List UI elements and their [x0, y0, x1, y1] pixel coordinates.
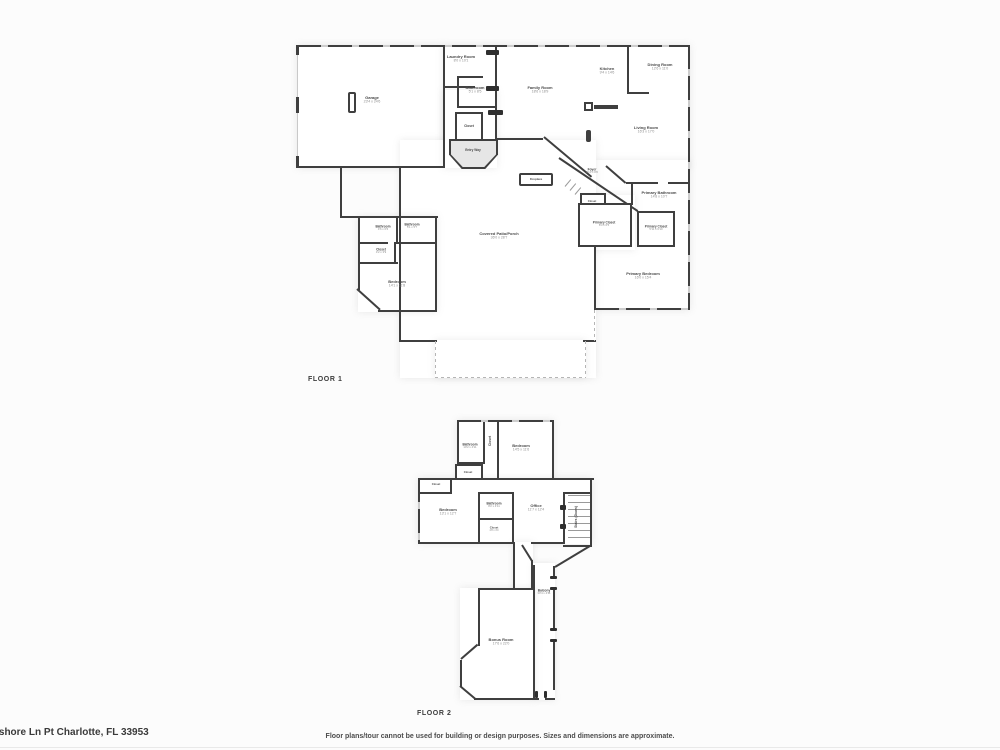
- wall: [552, 420, 554, 480]
- wall: [394, 244, 396, 264]
- room-dims: 4'8 x 4'0: [490, 529, 499, 532]
- room-dims: 13'1 x 12'7: [440, 512, 457, 516]
- room-dims: 14'5 x 11'6: [513, 448, 529, 452]
- room-label-closet: Closet: [588, 199, 597, 202]
- room-dims: 23'4 x 24'6: [364, 100, 381, 104]
- room-label-bathroom: Bathroom4'6 x 6'6: [375, 225, 390, 232]
- room-name: Entry Way: [465, 148, 481, 152]
- porch-edge: [435, 341, 436, 378]
- wall: [531, 542, 565, 544]
- room-label-primary-closet: Primary Closet8'3 x 6'5: [593, 221, 616, 228]
- porch-edge: [594, 310, 595, 341]
- wall: [340, 166, 342, 218]
- door-jamb-icon: [560, 505, 566, 510]
- wall: [590, 478, 592, 547]
- closet-shelf-icon: [488, 110, 503, 115]
- door-jamb-icon: [550, 576, 557, 579]
- room-label-laundry: Laundry Room8'0 x 10'1: [447, 55, 475, 64]
- wall: [460, 660, 462, 687]
- closet-shelf-icon: [486, 86, 499, 91]
- room-label-bedroom: Bedroom14'1 x 11'8: [388, 280, 406, 289]
- wall: [396, 216, 398, 244]
- room-dims: 36'0 x 28'7: [491, 236, 508, 240]
- wall: [533, 565, 535, 700]
- porch-edge: [435, 377, 586, 378]
- wall: [553, 642, 555, 690]
- wall: [483, 422, 485, 462]
- door-jamb-icon: [544, 691, 547, 698]
- room-dims: 12'6 x 11'0: [652, 67, 668, 71]
- wall: [420, 492, 452, 494]
- room-name: Closet: [432, 482, 441, 485]
- disclaimer-text: Floor plans/tour cannot be used for buil…: [0, 733, 1000, 740]
- room-dims: 5'1 x 5'7: [407, 226, 417, 229]
- wall: [457, 76, 483, 78]
- wall: [478, 588, 535, 590]
- door-jamb-icon: [560, 524, 566, 529]
- room-dims: 14'1 x 11'8: [389, 284, 405, 288]
- room-label-bathroom: Bathroom10'2 x 4'11: [462, 443, 477, 450]
- door-jamb-icon: [550, 639, 557, 642]
- wall: [297, 45, 690, 47]
- room-dims: 5'11 x 6'10: [649, 228, 662, 231]
- room-label-family-room: Family Room18'6 x 18'9: [527, 86, 552, 95]
- wall: [688, 45, 690, 310]
- wall: [378, 310, 437, 312]
- wall: [512, 492, 514, 542]
- room-label-balcony: Balcony30'4 x 4'11: [537, 589, 550, 596]
- room-name: Closet: [464, 470, 473, 473]
- room-dims: 14'8 x 10'7: [651, 195, 668, 199]
- floor-area: [435, 340, 586, 378]
- room-label-closet: Closet4'2 x 3'9: [376, 248, 386, 255]
- room-label-fireplace: Fireplace: [530, 177, 542, 180]
- room-name: Closet: [588, 199, 597, 202]
- room-label-closet: Closet: [488, 436, 492, 446]
- room-dims: 11'7 x 12'4: [528, 508, 544, 512]
- room-label-bonus-room: Bonus Room17'6 x 22'0: [489, 638, 514, 647]
- room-dims: 7'10 x 8'0: [586, 171, 598, 174]
- door-jamb-icon: [550, 587, 557, 590]
- room-label-closet: Closet: [432, 482, 441, 485]
- room-label-foyer: Foyer7'10 x 8'0: [586, 168, 598, 175]
- room-name: Closet: [464, 124, 474, 128]
- floor1-caption: FLOOR 1: [308, 376, 343, 383]
- wall: [478, 492, 480, 542]
- room-label-office: Office11'7 x 12'4: [528, 504, 544, 513]
- room-dims: 30'4 x 4'11: [537, 592, 550, 595]
- room-label-bedroom: Bedroom13'1 x 12'7: [439, 508, 457, 517]
- wall: [399, 166, 401, 342]
- room-label-living-room: Living Room16'3 x 17'0: [634, 126, 658, 135]
- wall: [457, 106, 497, 108]
- stairs-treads: [568, 495, 590, 543]
- room-label-primary-bedroom: Primary Bedroom16'0 x 15'4: [626, 272, 660, 281]
- room-dims: 8'2 x 4'11: [488, 505, 500, 508]
- room-label-dining-room: Dining Room12'6 x 11'0: [648, 63, 673, 72]
- porch-edge: [585, 341, 586, 378]
- room-label-kitchen: Kitchen9'4 x 14'6: [600, 67, 615, 76]
- floor-area: [533, 563, 555, 700]
- wall: [358, 262, 398, 264]
- room-dims: 5'1 x 8'5: [469, 90, 482, 94]
- closet-shelf-icon: [486, 50, 499, 55]
- room-dims: 8'0 x 10'1: [454, 59, 469, 63]
- kitchen-island-icon: [586, 130, 591, 142]
- wall: [594, 247, 596, 310]
- room-dims: 16'3 x 17'0: [638, 130, 655, 134]
- floor-plan-canvas: Garage23'4 x 24'6 Laundry Room8'0 x 10'1…: [0, 0, 1000, 750]
- footer-divider: [0, 747, 1000, 748]
- wall: [435, 216, 437, 312]
- wall: [358, 216, 360, 290]
- wall: [296, 45, 299, 55]
- wall: [418, 542, 515, 544]
- room-label-garage: Garage23'4 x 24'6: [364, 96, 381, 105]
- wall: [533, 698, 539, 700]
- wall: [545, 698, 555, 700]
- wall: [478, 518, 514, 520]
- wall: [668, 182, 690, 184]
- room-label-stairs: Stairs (Down): [574, 506, 578, 528]
- wall: [478, 588, 480, 646]
- room-dims: 18'6 x 18'9: [532, 90, 549, 94]
- wall: [457, 420, 554, 422]
- wall: [443, 45, 445, 168]
- room-dims: 17'6 x 22'0: [493, 642, 510, 646]
- wall: [478, 492, 514, 494]
- wall: [563, 492, 565, 544]
- wall: [627, 45, 629, 94]
- wall: [631, 182, 633, 205]
- wall: [358, 242, 388, 244]
- wall: [340, 216, 360, 218]
- wall: [418, 478, 594, 480]
- floor2-caption: FLOOR 2: [417, 710, 452, 717]
- door-jamb-icon: [550, 628, 557, 631]
- wall: [595, 308, 690, 310]
- room-dims: 4'6 x 6'6: [378, 228, 388, 231]
- wall: [627, 92, 649, 94]
- room-dims: 16'0 x 15'4: [635, 276, 652, 280]
- room-dims: 9'4 x 14'6: [600, 71, 615, 75]
- room-label-primary-bathroom: Primary Bathroom14'8 x 10'7: [642, 191, 677, 200]
- wall-diagonal: [554, 545, 590, 568]
- wall: [418, 478, 420, 544]
- wall: [513, 544, 515, 590]
- wall: [457, 76, 459, 108]
- room-label-entry: Entry Way: [465, 148, 481, 152]
- wall: [495, 45, 497, 140]
- room-label-covered-patio: Covered Patio/Porch36'0 x 28'7: [479, 232, 518, 241]
- room-label-bathroom: Bathroom5'1 x 8'5: [466, 86, 485, 95]
- room-label-closet: Closet: [464, 470, 473, 473]
- wall: [394, 242, 437, 244]
- room-label-bathroom: Bathroom5'1 x 5'7: [404, 223, 419, 230]
- room-dims: 4'2 x 3'9: [376, 251, 386, 254]
- water-heater-icon: [348, 92, 356, 113]
- room-label-primary-closet: Primary Closet5'11 x 6'10: [645, 225, 668, 232]
- room-label-closet: Closet: [464, 124, 474, 128]
- room-name: Stairs (Down): [574, 506, 578, 528]
- room-dims: 8'3 x 6'5: [599, 224, 609, 227]
- wall: [553, 590, 555, 630]
- room-label-bathroom: Bathroom8'2 x 4'11: [486, 502, 501, 509]
- wall: [474, 698, 535, 700]
- room-name: Closet: [488, 436, 492, 446]
- wall: [358, 216, 438, 218]
- room-dims: 10'2 x 4'11: [463, 446, 476, 449]
- wall: [297, 166, 445, 168]
- wall: [497, 420, 499, 480]
- wall: [399, 340, 437, 342]
- wall: [450, 478, 452, 494]
- room-label-bedroom: Bedroom14'5 x 11'6: [512, 444, 530, 453]
- room-label-closet: Closet4'8 x 4'0: [490, 526, 499, 532]
- room-name: Fireplace: [530, 177, 542, 180]
- door-jamb-icon: [535, 691, 538, 698]
- wall: [296, 97, 299, 113]
- kitchen-counter-icon: [594, 105, 618, 109]
- kitchen-counter-icon: [584, 102, 593, 111]
- wall: [565, 492, 592, 494]
- wall: [495, 138, 543, 140]
